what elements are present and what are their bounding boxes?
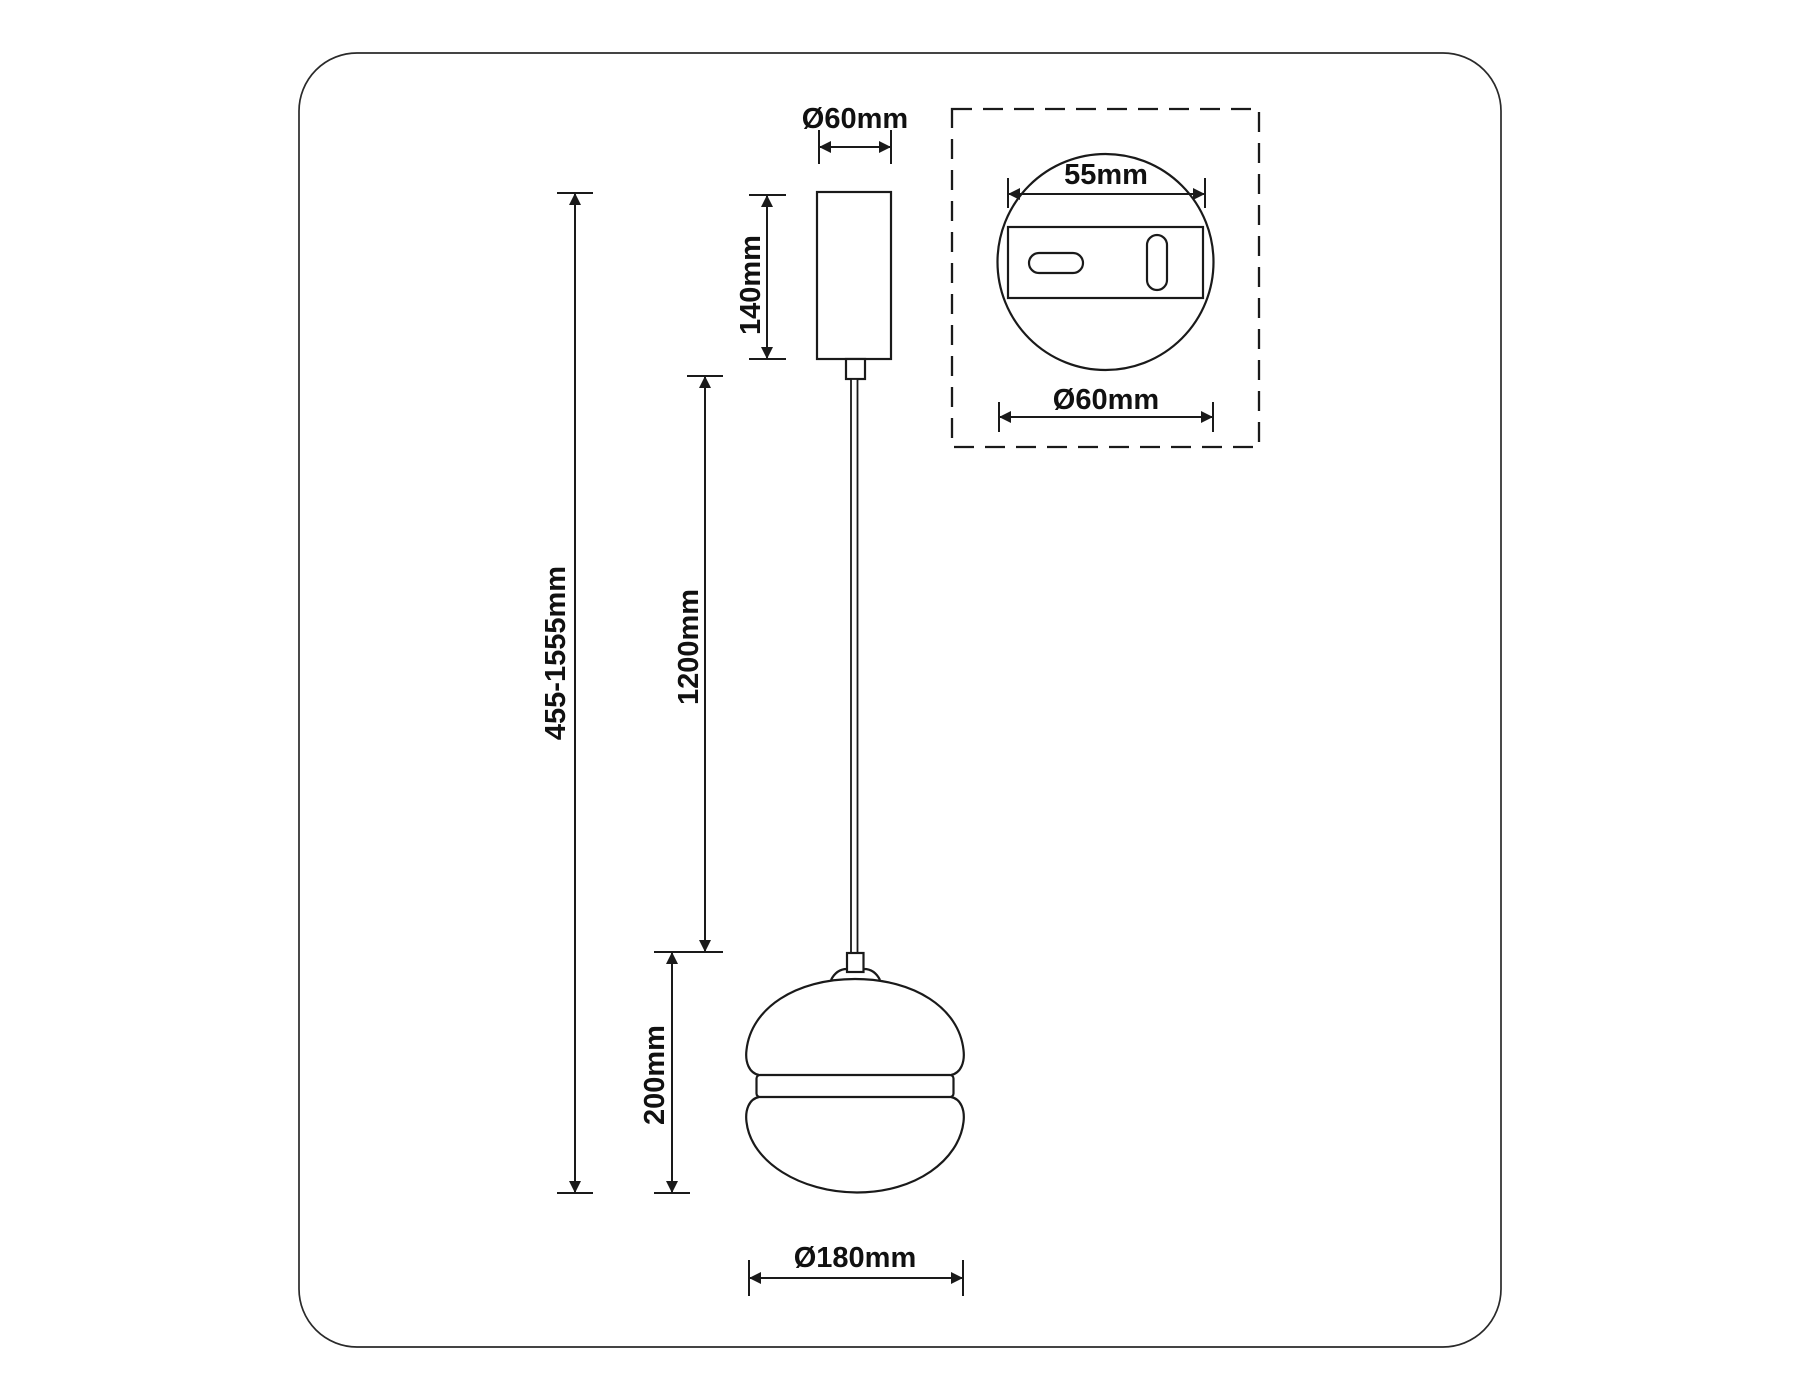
mount-hole-spacing-label: 55mm: [1064, 159, 1148, 191]
pendant-lamp-dimension-diagram: Ø60mm 140mm 1200mm 455-1555mm 200mm Ø180…: [0, 0, 1800, 1400]
dim-cable-length: 1200mm: [673, 376, 723, 952]
suspension-cable: [851, 379, 858, 953]
cable-length-label: 1200mm: [673, 589, 705, 705]
shade-diameter-label: Ø180mm: [794, 1242, 917, 1274]
pendant-lamp-front-view: [746, 192, 964, 1193]
dim-shade-height: 200mm: [639, 952, 690, 1193]
shade-cable-connector: [847, 953, 864, 972]
overall-height-label: 455-1555mm: [540, 566, 572, 740]
canopy-outline: [817, 192, 891, 359]
dim-shade-diameter: Ø180mm: [749, 1242, 963, 1296]
outer-frame: [299, 53, 1501, 1347]
canopy-height-label: 140mm: [735, 235, 767, 335]
dim-mount-plate-diameter: Ø60mm: [999, 384, 1213, 432]
mount-plate-diameter-label: Ø60mm: [1053, 384, 1159, 416]
shade-upper-dome: [746, 979, 964, 1075]
canopy-diameter-label: Ø60mm: [802, 103, 908, 135]
diagram-canvas: Ø60mm 140mm 1200mm 455-1555mm 200mm Ø180…: [0, 0, 1800, 1400]
shade-height-label: 200mm: [639, 1025, 671, 1125]
shade-middle-band: [757, 1075, 954, 1097]
canopy-cable-connector: [846, 359, 865, 379]
dim-mount-hole-spacing: 55mm: [1008, 159, 1205, 208]
dim-canopy-diameter: Ø60mm: [802, 103, 908, 164]
shade-lower-dome: [746, 1097, 964, 1193]
mount-bracket: [1008, 227, 1203, 298]
dim-overall-height: 455-1555mm: [540, 193, 593, 1193]
mount-plate-detail-view: 55mm Ø60mm: [952, 109, 1259, 447]
dim-canopy-height: 140mm: [735, 195, 786, 359]
